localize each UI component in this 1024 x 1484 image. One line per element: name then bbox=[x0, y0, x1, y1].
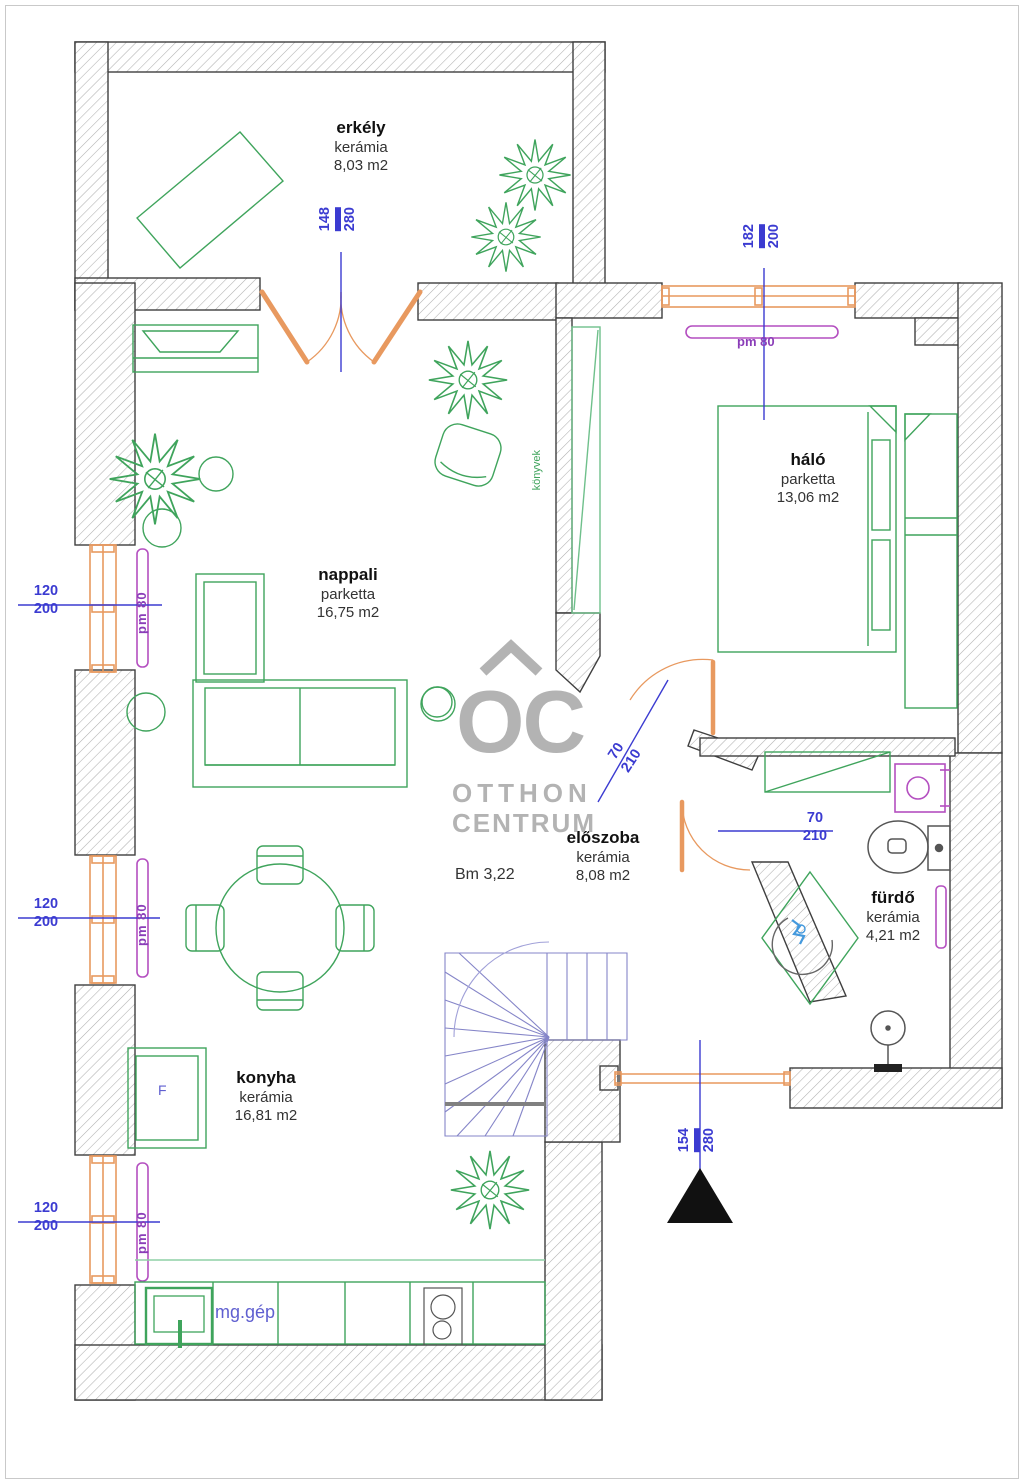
right-wall bbox=[958, 283, 1002, 753]
dim-divider bbox=[335, 207, 341, 231]
watermark-line1: OTTHON bbox=[452, 778, 570, 809]
armchair bbox=[196, 574, 264, 682]
room-area: 4,21 m2 bbox=[866, 927, 920, 945]
room-material: parketta bbox=[317, 586, 380, 604]
bed bbox=[718, 406, 896, 652]
north-arrow-icon bbox=[667, 1168, 733, 1223]
bedroom-door bbox=[630, 659, 713, 733]
dim-bathroom-door: 70 210 bbox=[790, 809, 840, 845]
living-top-wall bbox=[418, 283, 558, 320]
room-material: kerámia bbox=[235, 1089, 298, 1107]
hall-stool bbox=[422, 687, 452, 717]
toilet bbox=[868, 821, 950, 873]
dim-balcony-door: 148 280 bbox=[316, 207, 359, 231]
balcony-right-wall bbox=[573, 42, 605, 288]
room-material: parketta bbox=[777, 471, 840, 489]
watermark-logo: OC bbox=[456, 678, 566, 766]
hall-living-divider-wall bbox=[556, 318, 572, 613]
left-window-2 bbox=[90, 856, 116, 983]
left-wall-seg1 bbox=[75, 283, 135, 545]
room-material: kerámia bbox=[567, 849, 640, 867]
hall-closet-band bbox=[572, 327, 600, 613]
dim-divider bbox=[759, 224, 765, 248]
dim-divider bbox=[694, 1128, 700, 1152]
dim-width: 154 bbox=[675, 1128, 694, 1152]
room-label-konyha: konyha kerámia 16,81 m2 bbox=[235, 1068, 298, 1125]
dining-table-set bbox=[186, 846, 374, 1010]
south-window bbox=[615, 1072, 790, 1085]
dim-width: 148 bbox=[316, 207, 335, 231]
room-name: nappali bbox=[317, 565, 380, 586]
dim-height: 210 bbox=[803, 827, 827, 845]
dim-height: 200 bbox=[34, 600, 58, 618]
balcony-top-wall bbox=[75, 42, 605, 72]
dim-width: 120 bbox=[34, 582, 58, 600]
dim-height: 200 bbox=[34, 913, 58, 931]
dim-height: 280 bbox=[341, 207, 360, 231]
room-name: erkély bbox=[334, 118, 388, 139]
bottom-wall bbox=[75, 1345, 602, 1400]
room-material: kerámia bbox=[334, 139, 388, 157]
balcony-table bbox=[137, 132, 283, 268]
stairs-east-wall bbox=[545, 1040, 620, 1142]
dim-height: 200 bbox=[765, 224, 784, 248]
dim-width: 120 bbox=[34, 1199, 58, 1217]
dim-left-window-2: 120 200 bbox=[26, 895, 66, 931]
plant-icon bbox=[471, 202, 540, 271]
left-window-1 bbox=[90, 545, 116, 672]
dim-left-window-3: 120 200 bbox=[26, 1199, 66, 1235]
bedroom-top-left-wall bbox=[556, 283, 662, 318]
room-name: fürdő bbox=[866, 888, 920, 909]
dim-height: 200 bbox=[34, 1217, 58, 1235]
plant-icon bbox=[499, 139, 570, 210]
left-wall-seg2 bbox=[75, 670, 135, 855]
dim-width: 70 bbox=[807, 809, 823, 827]
dim-left-window-1: 120 200 bbox=[26, 582, 66, 618]
room-label-furdo: fürdő kerámia 4,21 m2 bbox=[866, 888, 920, 945]
room-area: 16,81 m2 bbox=[235, 1107, 298, 1125]
dim-height: 280 bbox=[700, 1128, 719, 1152]
plant-pot-1 bbox=[199, 457, 233, 491]
sofa bbox=[193, 680, 407, 787]
bathroom-door bbox=[682, 802, 750, 870]
room-name: háló bbox=[777, 450, 840, 471]
books-label: könyvek bbox=[531, 450, 543, 490]
radiator-label-kitchen-2: pm 80 bbox=[134, 1198, 149, 1254]
room-name: konyha bbox=[235, 1068, 298, 1089]
kitchen-east-wall bbox=[545, 1142, 602, 1400]
left-wall-seg3 bbox=[75, 985, 135, 1155]
room-material: kerámia bbox=[866, 909, 920, 927]
bathroom-radiator bbox=[936, 886, 946, 948]
bedroom-bath-divider-wall bbox=[700, 738, 955, 756]
radiator-label-kitchen-1: pm 80 bbox=[134, 890, 149, 946]
room-area: 13,06 m2 bbox=[777, 489, 840, 507]
room-area: 16,75 m2 bbox=[317, 604, 380, 622]
fridge-label: F bbox=[158, 1082, 167, 1098]
room-area: 8,03 m2 bbox=[334, 157, 388, 175]
radiator-label-living: pm 80 bbox=[134, 578, 149, 634]
pouf-chair bbox=[431, 420, 505, 490]
radiator-label-bedroom: pm 80 bbox=[737, 334, 775, 349]
balcony-left-wall bbox=[75, 42, 108, 310]
stove bbox=[424, 1288, 462, 1345]
washing-machine-connection bbox=[871, 1011, 905, 1072]
bathroom-bottom-wall bbox=[790, 1068, 1002, 1108]
bedroom-top-right-wall bbox=[855, 283, 960, 318]
dim-width: 182 bbox=[740, 224, 759, 248]
kitchen-sink bbox=[146, 1288, 212, 1348]
left-window-3 bbox=[90, 1156, 116, 1283]
room-area: 8,08 m2 bbox=[567, 867, 640, 885]
bedroom-window bbox=[662, 286, 855, 307]
bathroom-shelf bbox=[765, 752, 890, 792]
bedroom-corner-step bbox=[915, 318, 960, 345]
tv-bench bbox=[133, 325, 258, 372]
dim-width: 120 bbox=[34, 895, 58, 913]
watermark-line2: CENTRUM bbox=[452, 808, 570, 839]
room-label-erkely: erkély kerámia 8,03 m2 bbox=[334, 118, 388, 175]
watermark-roof-icon bbox=[483, 646, 539, 672]
room-label-halo: háló parketta 13,06 m2 bbox=[777, 450, 840, 507]
room-label-nappali: nappali parketta 16,75 m2 bbox=[317, 565, 380, 622]
fridge bbox=[128, 1048, 206, 1148]
dishwasher-label: mg.gép bbox=[215, 1302, 275, 1323]
washbasin bbox=[895, 764, 950, 812]
plant-icon bbox=[429, 341, 507, 419]
dim-bedroom-window: 182 200 bbox=[740, 224, 783, 248]
bedroom-wardrobe bbox=[905, 414, 957, 708]
floor-plan: erkély kerámia 8,03 m2 háló parketta 13,… bbox=[0, 0, 1024, 1484]
beam-height-label: Bm 3,22 bbox=[455, 866, 515, 884]
bathroom-right-wall bbox=[950, 753, 1002, 1108]
dim-south-window: 154 280 bbox=[675, 1128, 718, 1152]
plant-icon bbox=[451, 1151, 529, 1229]
